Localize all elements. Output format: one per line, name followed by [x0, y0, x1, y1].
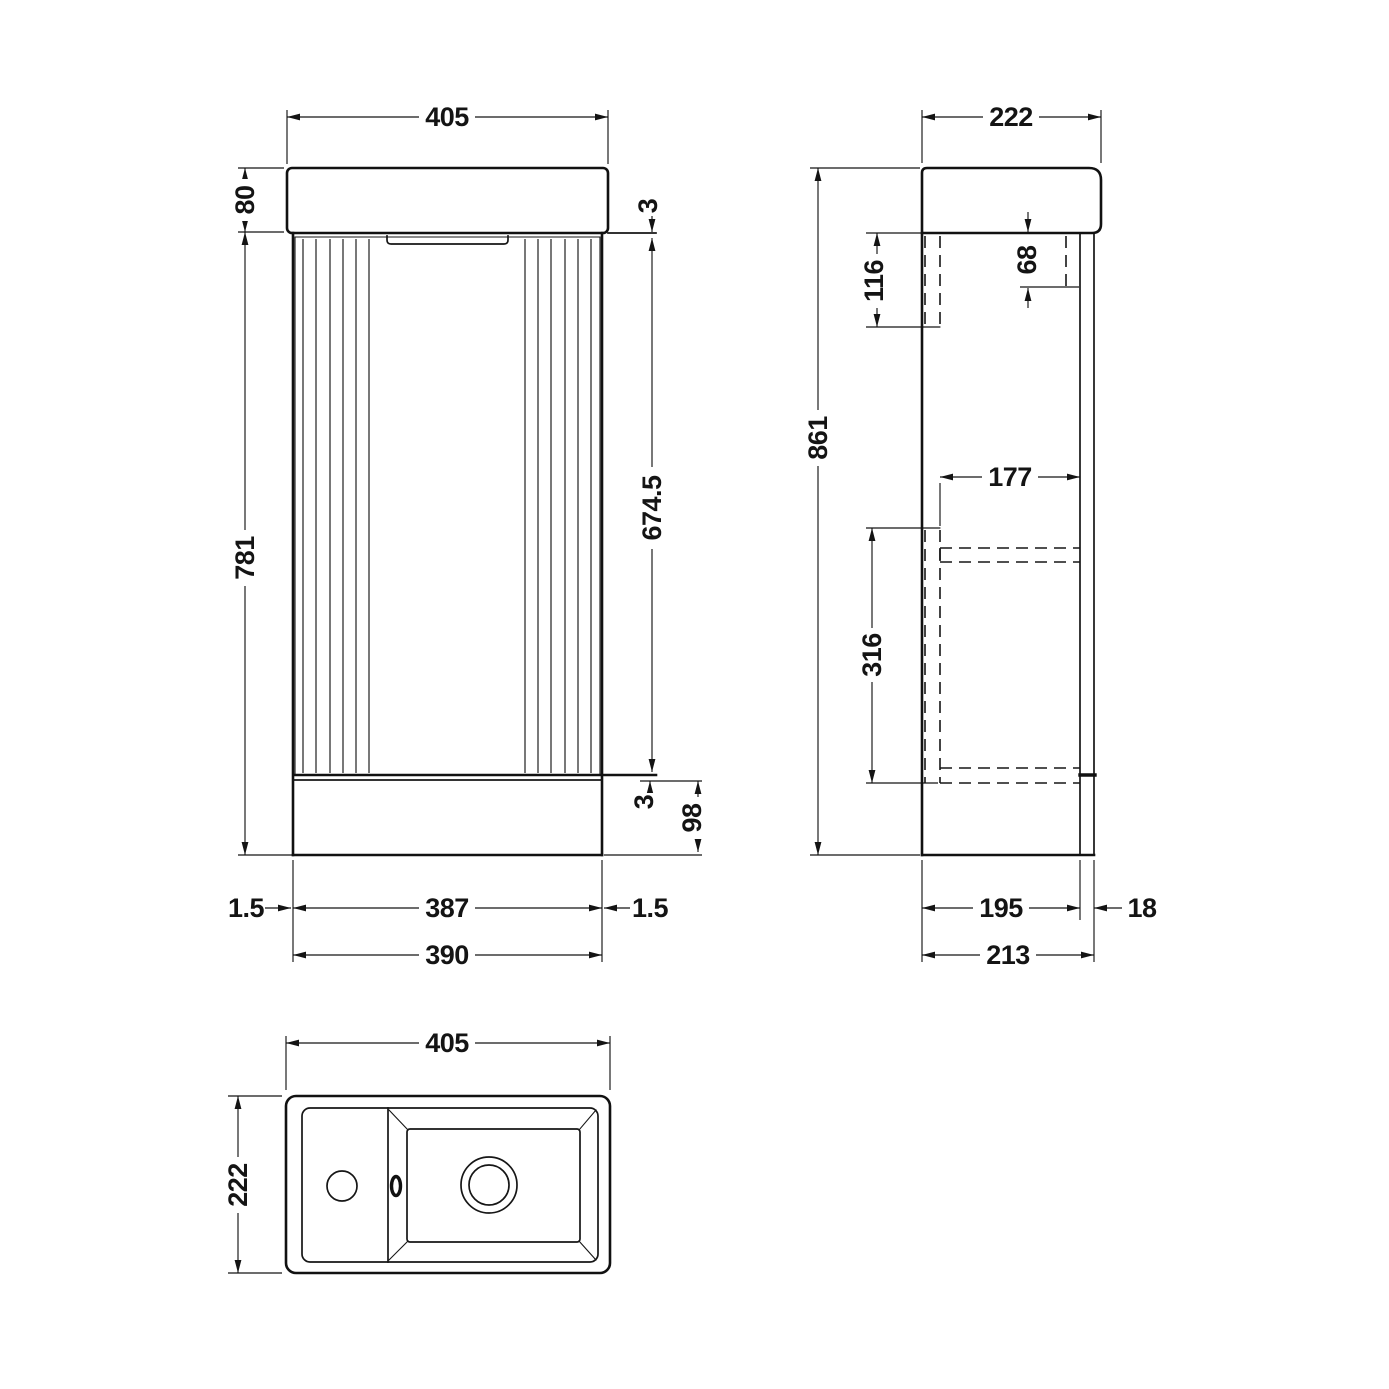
svg-text:674.5: 674.5 — [637, 475, 667, 541]
svg-text:390: 390 — [425, 940, 469, 970]
side-dim-internal-depth: 177 — [982, 462, 1038, 492]
side-dim-internal-back-height: 316 — [857, 628, 887, 682]
svg-text:177: 177 — [988, 462, 1032, 492]
side-dim-overall-height: 861 — [803, 410, 833, 466]
side-dim-overall-depth: 213 — [980, 940, 1036, 970]
side-dim-door-thickness: 18 — [1122, 893, 1162, 923]
side-dim-basin-depth: 222 — [983, 102, 1039, 132]
svg-text:195: 195 — [979, 893, 1023, 923]
svg-text:222: 222 — [989, 102, 1033, 132]
svg-text:781: 781 — [230, 536, 260, 580]
front-dim-top-gap: 3 — [633, 197, 663, 215]
svg-text:98: 98 — [677, 803, 707, 833]
side-dim-back-fixing-height: 116 — [859, 254, 889, 308]
svg-text:80: 80 — [230, 185, 260, 214]
svg-text:68: 68 — [1012, 245, 1042, 275]
drawing-page: 405 80 781 3 674.5 3 98 1.5 — [0, 0, 1389, 1389]
front-dim-cabinet-width: 390 — [419, 940, 475, 970]
svg-text:387: 387 — [425, 893, 469, 923]
front-dim-left-gap: 1.5 — [225, 893, 265, 923]
svg-text:213: 213 — [986, 940, 1030, 970]
svg-text:3: 3 — [633, 198, 663, 213]
plan-dim-basin-width: 405 — [419, 1028, 475, 1058]
front-dim-door-height: 674.5 — [637, 467, 667, 549]
svg-text:405: 405 — [425, 1028, 469, 1058]
plan-dim-basin-depth: 222 — [223, 1157, 253, 1213]
front-dim-worktop-height: 80 — [230, 179, 260, 221]
svg-text:3: 3 — [629, 794, 659, 809]
side-dim-carcass-depth: 195 — [973, 893, 1029, 923]
svg-text:116: 116 — [859, 259, 889, 302]
svg-text:405: 405 — [425, 102, 469, 132]
side-dim-front-fixing-height: 68 — [1012, 240, 1042, 280]
front-dim-bottom-gap: 3 — [629, 793, 659, 811]
vanity-unit-technical-drawing: 405 80 781 3 674.5 3 98 1.5 — [0, 0, 1389, 1389]
svg-text:18: 18 — [1127, 893, 1157, 923]
svg-text:1.5: 1.5 — [228, 893, 265, 923]
canvas-background — [0, 0, 1389, 1389]
svg-text:1.5: 1.5 — [632, 893, 669, 923]
front-dim-basin-width: 405 — [419, 102, 475, 132]
svg-text:316: 316 — [857, 633, 887, 677]
front-dim-plinth-height: 98 — [677, 797, 707, 839]
front-dim-cabinet-height: 781 — [230, 530, 260, 586]
front-dim-right-gap: 1.5 — [630, 893, 670, 923]
front-dim-door-width: 387 — [419, 893, 475, 923]
svg-text:861: 861 — [803, 416, 833, 460]
svg-text:222: 222 — [223, 1163, 253, 1207]
